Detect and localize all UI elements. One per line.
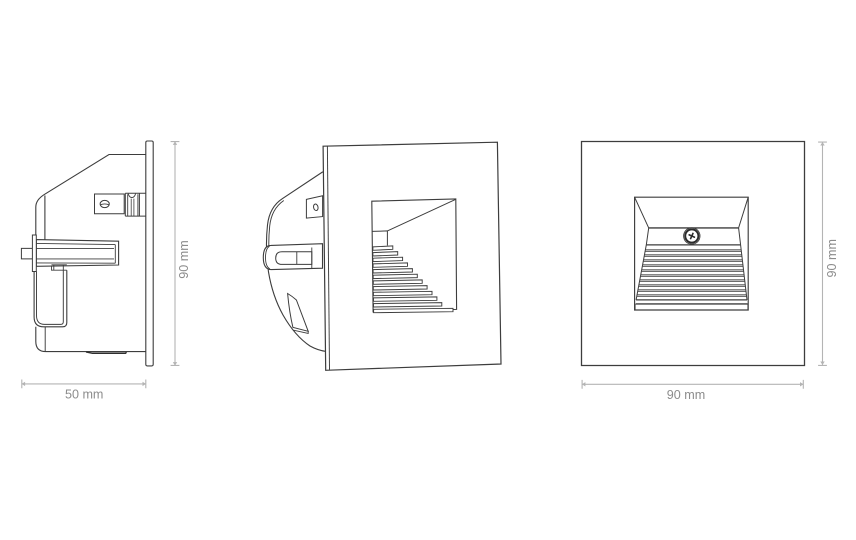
- svg-text:90 mm: 90 mm: [667, 388, 706, 402]
- svg-text:50 mm: 50 mm: [65, 388, 104, 402]
- svg-text:90 mm: 90 mm: [177, 240, 191, 279]
- svg-text:90 mm: 90 mm: [825, 239, 839, 278]
